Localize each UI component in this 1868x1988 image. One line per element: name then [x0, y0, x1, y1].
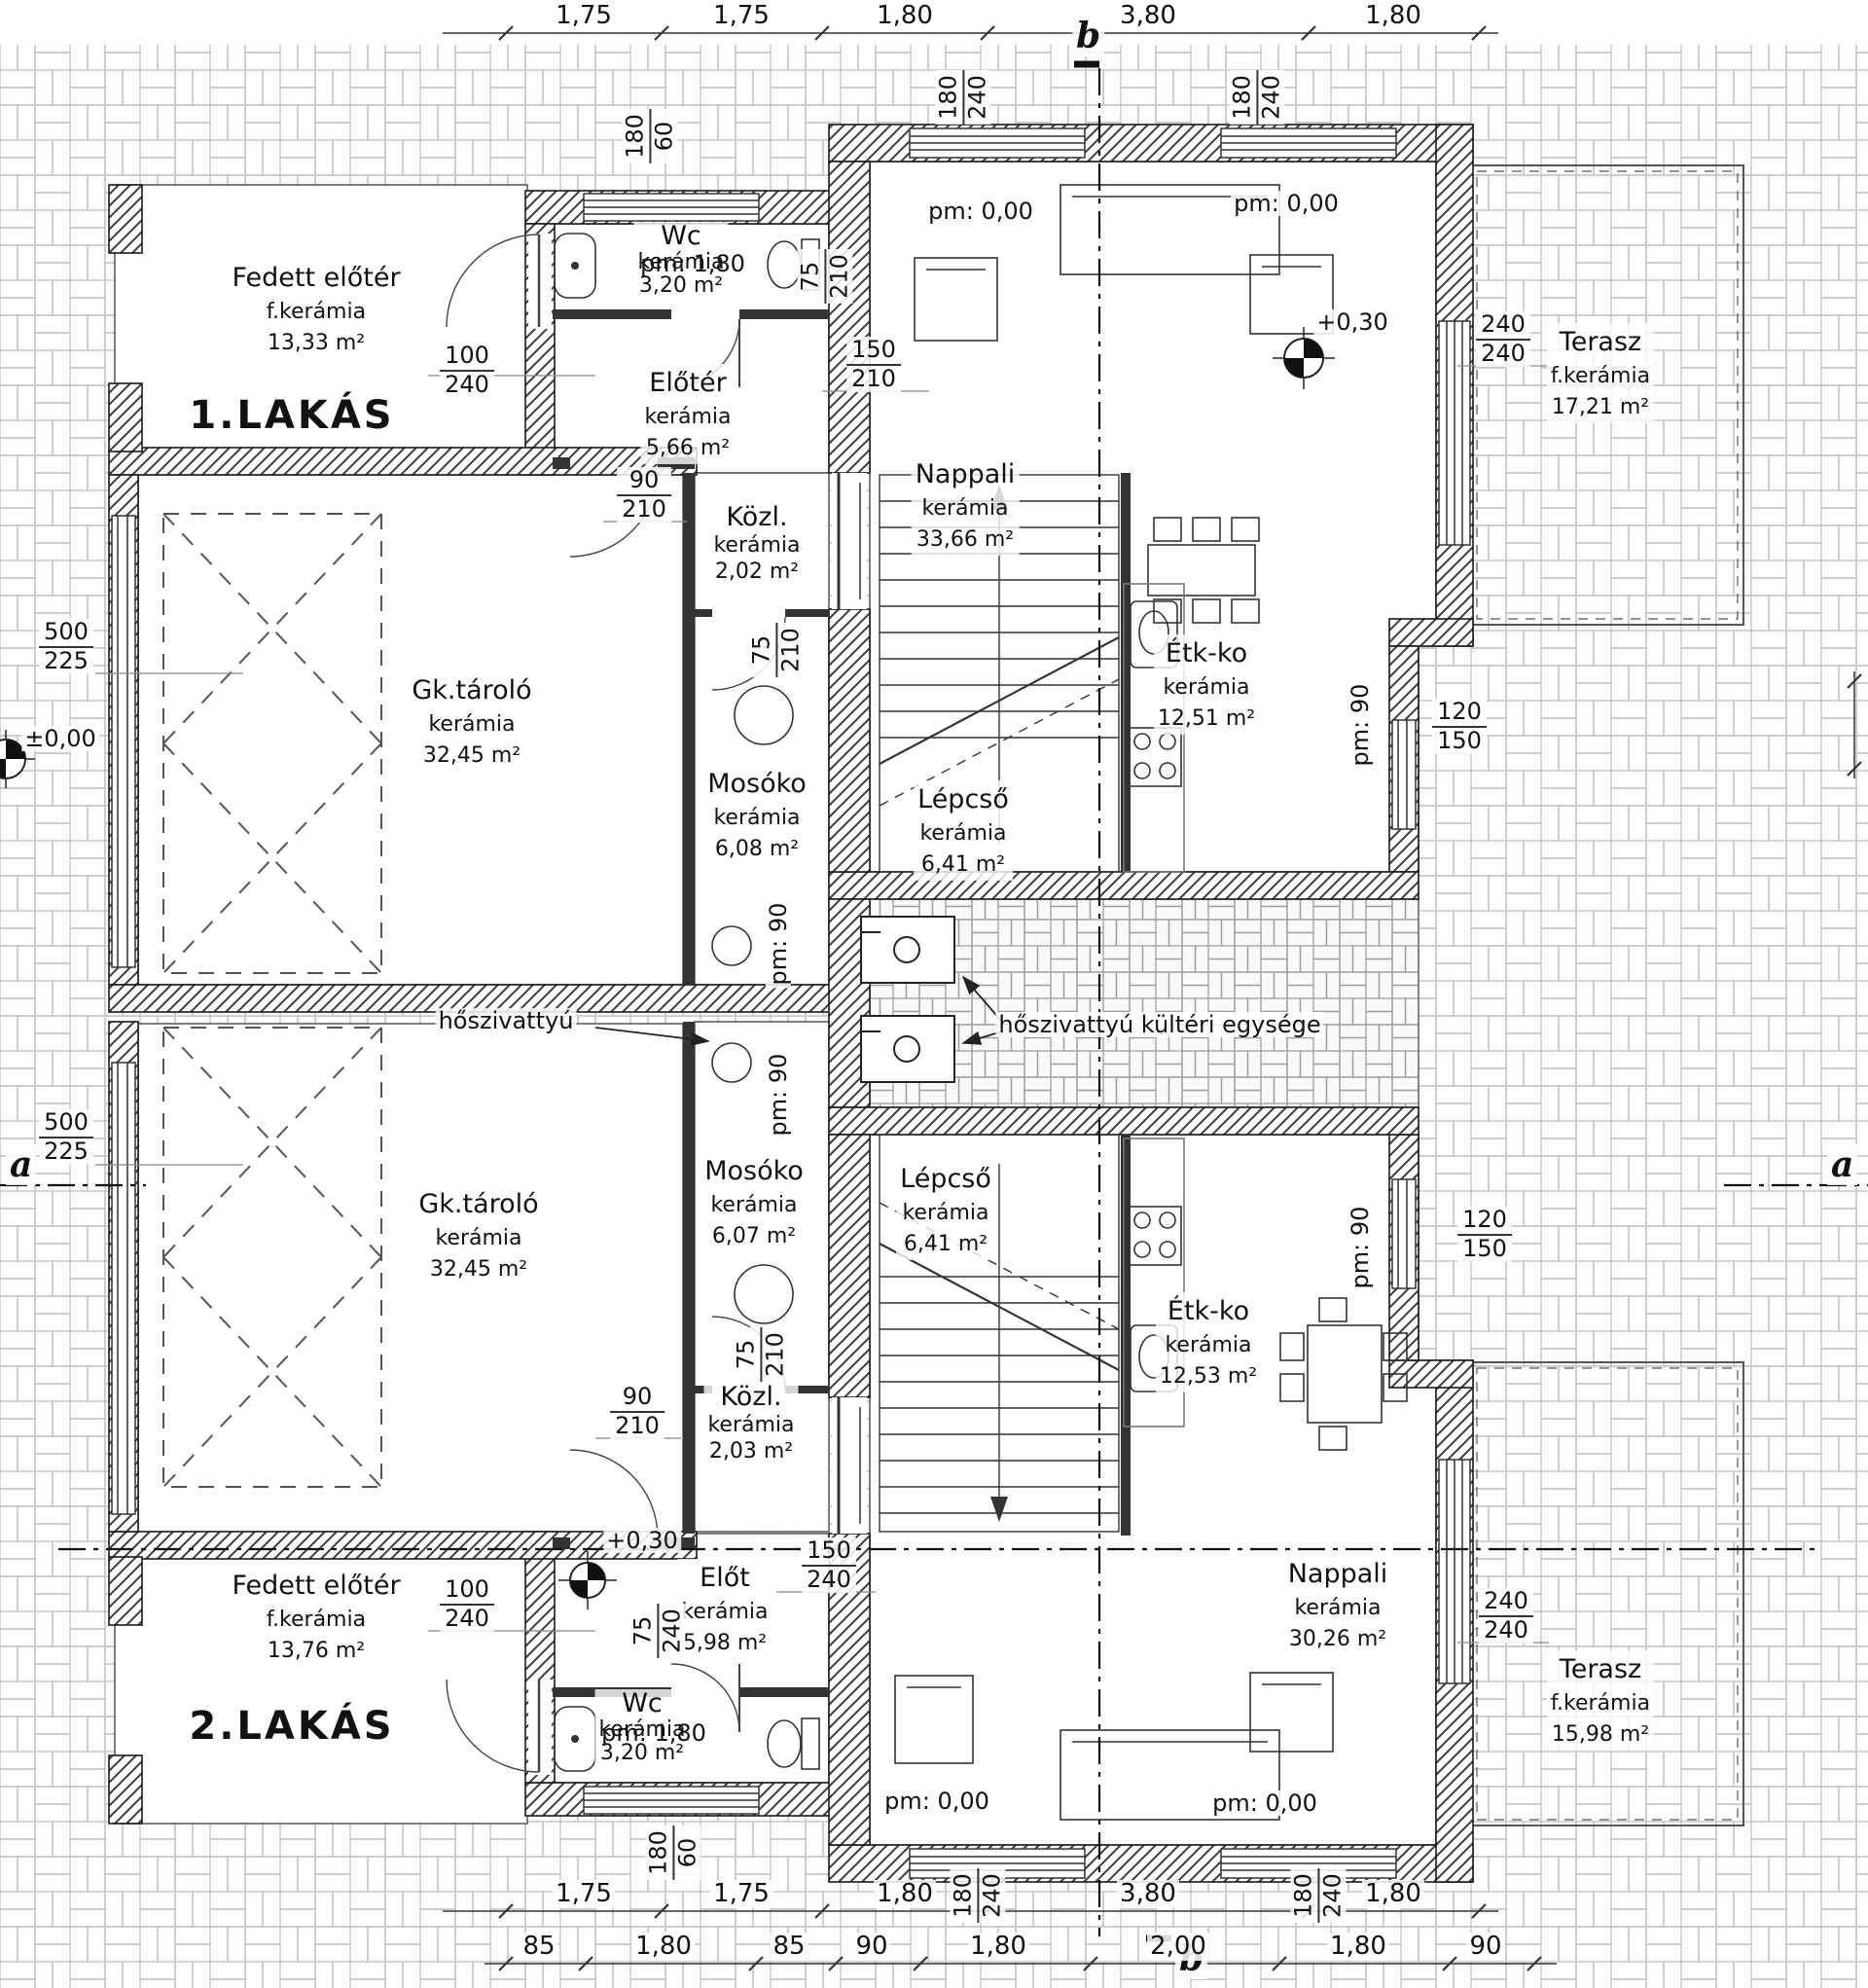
- level-pm90-3: pm: 90: [1347, 681, 1373, 770]
- dim-door-240-240-2: 240240: [1479, 1588, 1533, 1644]
- dim-door-90-210-2: 90210: [610, 1384, 665, 1439]
- dim-bl-1: 85: [520, 1933, 557, 1961]
- room-label-eloter-1: Előtér kerámia 5,66 m²: [640, 364, 735, 464]
- dim-door-75-210-mosoko-1: 75210: [748, 623, 804, 677]
- level-zero-00: ±0,00: [21, 726, 99, 751]
- dim-door-100-240-1: 100240: [440, 343, 494, 398]
- dim-bu-5: 1,80: [1362, 1880, 1424, 1908]
- annotation-heat-pump-outdoor: hőszivattyú kültéri egysége: [995, 1012, 1323, 1037]
- room-label-fedett-eloter-2: Fedett előtér f.kerámia 13,76 m²: [228, 1567, 404, 1667]
- level-pm90-4: pm: 90: [1347, 1204, 1373, 1292]
- dim-window-180-240-1a: 180240: [935, 70, 990, 125]
- level-plus030-1: +0,30: [1313, 309, 1391, 335]
- dim-top-1: 1,75: [553, 2, 615, 30]
- dim-bl-7: 1,80: [1327, 1933, 1389, 1961]
- dim-door-75-210-mosoko-2: 75210: [733, 1327, 788, 1382]
- section-marker-a-right: a: [1827, 1144, 1857, 1185]
- level-pm90-2: pm: 90: [766, 1051, 791, 1139]
- dim-door-90-210-1: 90210: [617, 467, 671, 523]
- floor-plan-canvas: 1.LAKÁS 2.LAKÁS Fedett előtér f.kerámia …: [0, 0, 1868, 1988]
- level-pm180-wc2: pm: 1,80: [598, 1720, 709, 1746]
- unit-1-title: 1.LAKÁS: [186, 394, 397, 437]
- room-label-etkko-1: Étk-ko kerámia 12,51 m²: [1154, 634, 1259, 735]
- dim-bl-6: 2,00: [1147, 1933, 1209, 1961]
- dim-bl-3: 85: [770, 1933, 808, 1961]
- dim-bu-1: 1,75: [553, 1880, 615, 1908]
- dim-door-150-240-2: 150240: [802, 1537, 856, 1593]
- room-label-elot-2: Előt kerámia 5,98 m²: [677, 1559, 772, 1659]
- section-marker-b-top: b: [1072, 16, 1104, 56]
- dim-door-100-240-2: 100240: [440, 1576, 494, 1632]
- dim-door-150-210-1: 150210: [846, 337, 901, 392]
- unit-2-title: 2.LAKÁS: [186, 1705, 397, 1748]
- room-label-fedett-eloter-1: Fedett előtér f.kerámia 13,33 m²: [228, 259, 404, 359]
- dim-top-2: 1,75: [710, 2, 772, 30]
- dim-top-5: 1,80: [1362, 2, 1424, 30]
- level-pm180-wc1: pm: 1,80: [637, 251, 748, 276]
- room-label-nappali-1: Nappali kerámia 33,66 m²: [912, 455, 1020, 556]
- level-pm000-3: pm: 0,00: [881, 1789, 992, 1814]
- dim-window-180-240-2a: 180240: [950, 1868, 1005, 1923]
- dim-window-180-60-1: 18060: [622, 109, 677, 163]
- dim-bu-2: 1,75: [710, 1880, 772, 1908]
- dim-garage-door-500-225-1: 500225: [39, 619, 93, 674]
- room-label-terasz-2: Terasz f.kerámia 15,98 m²: [1547, 1650, 1654, 1751]
- room-label-gktarolo-2: Gk.tároló kerámia 32,45 m²: [414, 1185, 542, 1285]
- dim-window-120-150-1: 120150: [1432, 699, 1487, 754]
- dim-bl-2: 1,80: [632, 1933, 695, 1961]
- level-pm000-4: pm: 0,00: [1209, 1790, 1320, 1816]
- level-pm000-1: pm: 0,00: [925, 199, 1036, 224]
- room-label-mosoko-1: Mosóko kerámia 6,08 m²: [703, 765, 810, 865]
- level-plus030-2: +0,30: [603, 1528, 681, 1553]
- dim-bl-5: 1,80: [967, 1933, 1029, 1961]
- section-marker-a-left: a: [6, 1144, 36, 1185]
- dim-window-180-240-1b: 180240: [1229, 70, 1284, 125]
- dim-bl-4: 90: [852, 1933, 890, 1961]
- dim-garage-door-500-225-2: 500225: [39, 1109, 93, 1165]
- room-label-etkko-2: Étk-ko kerámia 12,53 m²: [1156, 1292, 1261, 1392]
- room-label-nappali-2: Nappali kerámia 30,26 m²: [1284, 1555, 1392, 1655]
- level-pm000-2: pm: 0,00: [1231, 191, 1342, 216]
- room-label-gktarolo-1: Gk.tároló kerámia 32,45 m²: [408, 671, 535, 772]
- room-label-terasz-1: Terasz f.kerámia 17,21 m²: [1547, 323, 1654, 423]
- dim-bl-8: 90: [1466, 1933, 1504, 1961]
- room-label-lepcso-1: Lépcső kerámia 6,41 m²: [914, 780, 1013, 881]
- dim-window-180-240-2b: 180240: [1290, 1868, 1346, 1923]
- annotation-heat-pump: hőszivattyú: [436, 1008, 577, 1033]
- dim-door-75-210-wc-1: 75210: [797, 249, 852, 304]
- room-label-lepcso-2: Lépcső kerámia 6,41 m²: [896, 1160, 995, 1260]
- dim-bu-4: 3,80: [1117, 1880, 1179, 1908]
- dim-door-75-240-elot-2: 75240: [629, 1604, 685, 1658]
- dim-top-3: 1,80: [874, 2, 936, 30]
- dim-window-120-150-2: 120150: [1457, 1207, 1512, 1262]
- room-label-mosoko-2: Mosóko kerámia 6,07 m²: [700, 1152, 808, 1252]
- dim-window-180-60-2: 18060: [645, 1825, 700, 1880]
- dim-top-4: 3,80: [1117, 2, 1179, 30]
- room-label-kozl-1: Közl. kerámia 2,02 m²: [709, 502, 804, 585]
- dim-door-240-240-1: 240240: [1476, 311, 1530, 367]
- level-pm90-1: pm: 90: [766, 900, 791, 989]
- room-label-kozl-2: Közl. kerámia 2,03 m²: [703, 1382, 798, 1464]
- dim-bu-3: 1,80: [874, 1880, 936, 1908]
